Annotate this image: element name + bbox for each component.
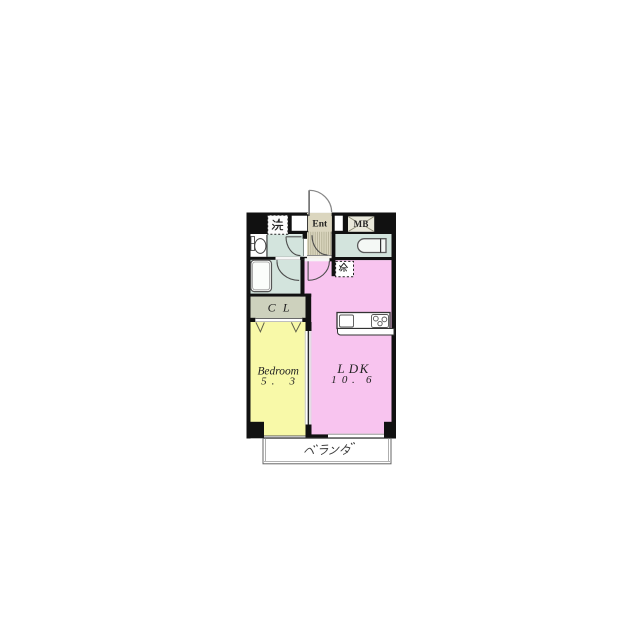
svg-text:3: 3 <box>289 375 296 387</box>
svg-text:0: 0 <box>342 374 348 386</box>
svg-text:6: 6 <box>366 374 372 386</box>
svg-text:.: . <box>272 375 275 387</box>
svg-text:C: C <box>268 301 277 315</box>
svg-text:1: 1 <box>331 374 337 386</box>
svg-text:MB: MB <box>354 219 369 229</box>
svg-text:.: . <box>352 374 355 386</box>
svg-text:5: 5 <box>261 375 267 387</box>
svg-text:Ent: Ent <box>312 220 328 230</box>
svg-text:L: L <box>282 301 290 315</box>
